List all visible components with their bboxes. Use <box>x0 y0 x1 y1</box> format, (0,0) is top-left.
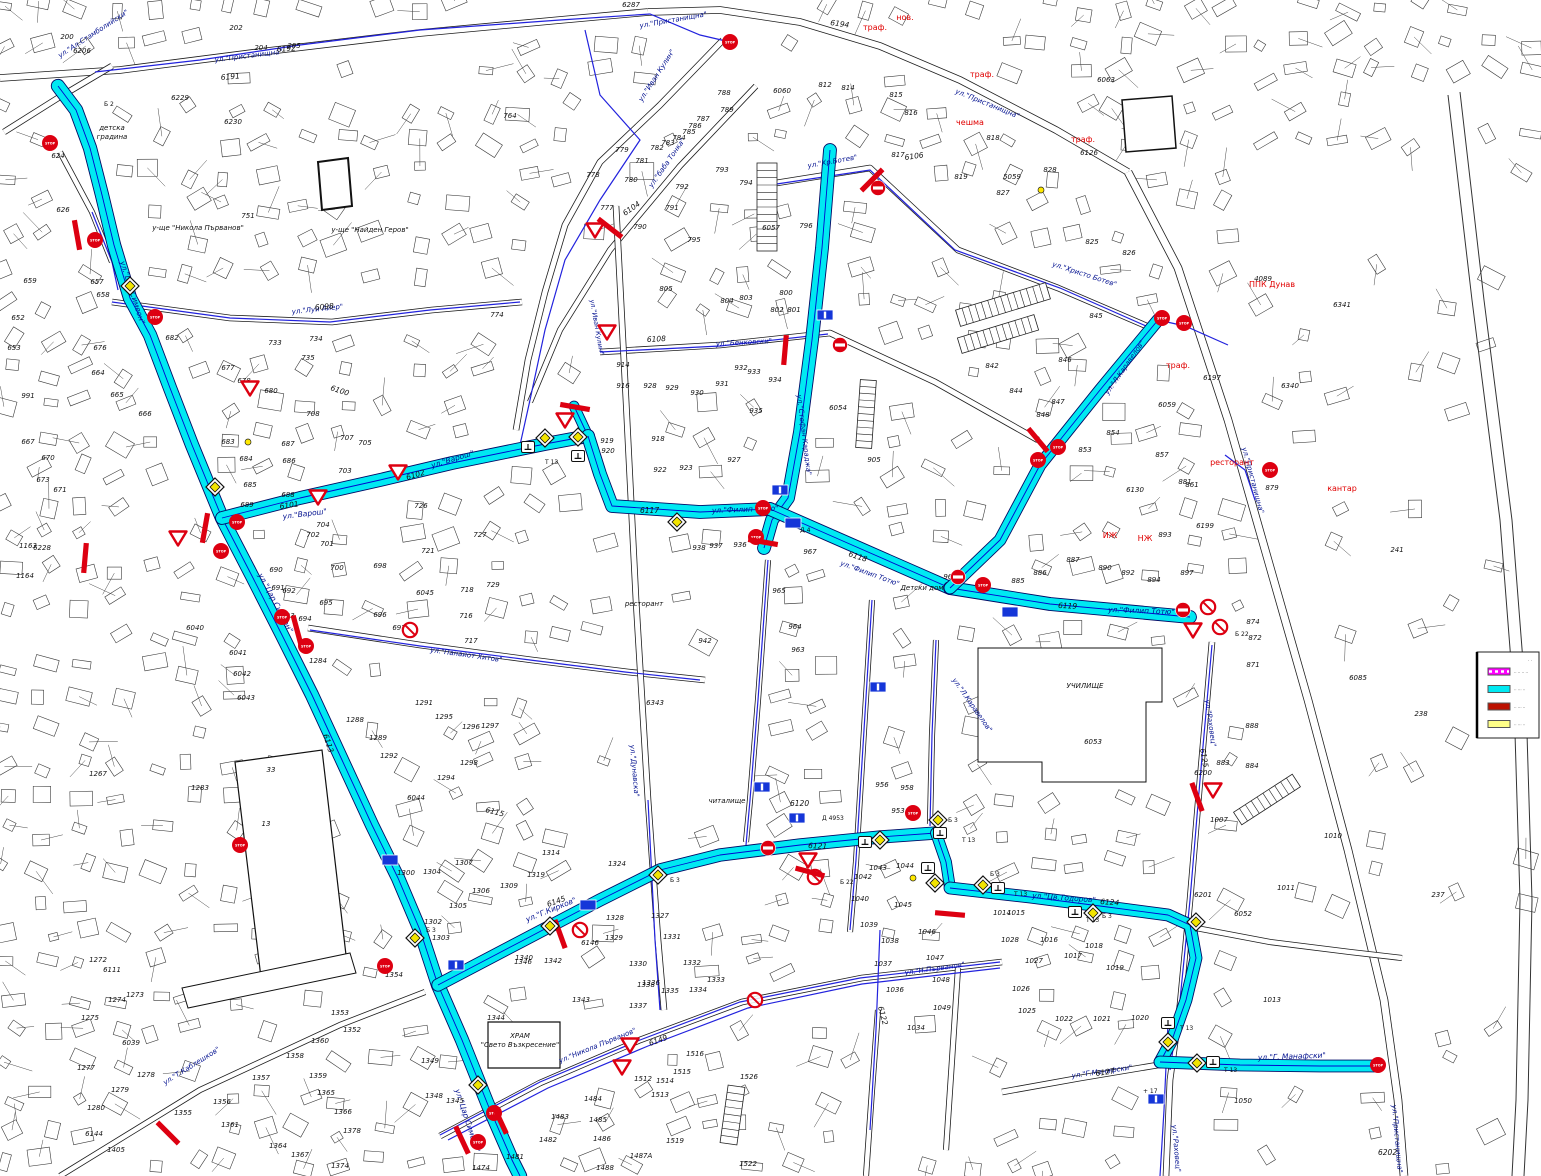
info-glyph <box>824 312 826 319</box>
hydrant-dot-icon <box>1038 187 1044 193</box>
parcel-outline <box>744 437 757 450</box>
parcel-outline <box>0 665 16 676</box>
parcel-outline <box>1369 1127 1381 1139</box>
parcel-outline <box>364 1151 384 1163</box>
parcel-outline <box>964 501 986 520</box>
parcel-number: 6039 <box>122 1039 140 1047</box>
parcel-outline <box>250 355 268 373</box>
parcel-outline <box>1025 35 1046 50</box>
parcel-number: 1334 <box>689 986 707 994</box>
parcel-outline <box>63 900 87 913</box>
parcel-outline <box>437 880 463 903</box>
parcel-outline <box>581 621 603 635</box>
parcel-outline <box>1520 62 1541 78</box>
parcel-number: 1018 <box>1085 942 1103 950</box>
parcel-number: 1314 <box>542 849 560 857</box>
parcel-number: 1291 <box>415 699 433 707</box>
parcel-outline <box>1112 231 1124 243</box>
parcel-number: 1345 <box>446 1097 464 1105</box>
parcel-outline <box>879 321 903 344</box>
parcel-outline <box>812 1027 826 1038</box>
parcel-outline <box>332 335 354 352</box>
parcel-boundary-line <box>1209 900 1231 920</box>
parcel-number: 1344 <box>487 1014 505 1022</box>
parcel-number: 690 <box>269 566 283 574</box>
parcel-outline <box>114 1060 133 1075</box>
parcel-outline <box>1411 0 1429 9</box>
parcel-number: 659 <box>23 277 37 285</box>
parcel-outline <box>1478 123 1496 144</box>
parcel-number: 1328 <box>606 914 624 922</box>
parcel-number: 241 <box>1390 546 1403 554</box>
direction-table-sign-icon <box>1162 1018 1175 1029</box>
parcel-outline <box>891 294 906 306</box>
road-closure-bar-icon <box>935 910 965 918</box>
parcel-number: 686 <box>282 457 296 465</box>
parcel-number: 718 <box>460 586 474 594</box>
map-legend: · ··· ·· ·· ···· ··· ···· ··· ···· ··· ·… <box>1477 652 1539 738</box>
parcel-number: 676 <box>93 344 107 352</box>
sign-code-label: Т 13 <box>961 837 975 844</box>
parcel-number: 701 <box>320 540 333 548</box>
parcel-outline <box>484 699 497 706</box>
stop-sign-icon: STOP <box>229 514 245 530</box>
parcel-outline <box>1327 135 1348 146</box>
parcel-outline <box>1363 58 1378 76</box>
parcel-number: 1359 <box>309 1072 327 1080</box>
parcel-number: 791 <box>665 204 678 212</box>
parcel-outline <box>1 1120 22 1141</box>
parcel-outline <box>337 61 353 78</box>
parcel-outline <box>44 1120 60 1139</box>
parcel-number: 1304 <box>423 868 441 876</box>
parcel-number: 1037 <box>874 960 892 968</box>
parcel-outline <box>666 422 685 437</box>
parcel-outline <box>1 789 15 802</box>
parcel-outline <box>144 437 157 447</box>
parcel-number: 726 <box>414 502 428 510</box>
parcel-outline <box>446 195 470 211</box>
parcel-number: 33 <box>267 766 276 774</box>
parcel-number: 884 <box>1245 762 1258 770</box>
parcel-number: 751 <box>241 212 254 220</box>
sign-code-label: Т 13 <box>1223 1067 1237 1074</box>
parcel-number: 657 <box>90 278 104 286</box>
parcel-number: 764 <box>503 112 516 120</box>
parcel-number: 6199 <box>1196 522 1214 530</box>
parcel-outline <box>816 438 834 447</box>
parcel-boundary-line <box>4 1062 32 1071</box>
parcel-outline <box>1107 624 1128 640</box>
parcel-outline <box>1222 528 1237 540</box>
parcel-number: 1298 <box>460 759 478 767</box>
parcel-number: 879 <box>1265 484 1279 492</box>
road-surface <box>946 968 958 1150</box>
parcel-outline <box>1333 59 1356 78</box>
parcel-outline <box>220 139 240 157</box>
parcel-outline <box>331 1131 344 1143</box>
parcel-outline <box>288 199 308 212</box>
parcel-outline <box>1218 498 1246 521</box>
parcel-outline <box>588 58 613 75</box>
parcel-outline <box>222 0 235 13</box>
parcel-outline <box>920 134 941 148</box>
parcel-outline <box>1179 423 1202 437</box>
parcel-number: 916 <box>616 382 630 390</box>
parcel-outline <box>774 129 786 138</box>
parcel-outline <box>253 530 264 539</box>
parcel-number: 664 <box>91 369 104 377</box>
parcel-outline <box>1141 965 1160 980</box>
parcel-number: 892 <box>1121 569 1135 577</box>
parcel-number: 716 <box>459 612 473 620</box>
parcel-number: 1045 <box>894 901 912 909</box>
parcel-number: 1335 <box>661 987 679 995</box>
parcel-outline <box>914 297 936 313</box>
parcel-number: 1349 <box>421 1057 439 1065</box>
yield-triangle <box>1205 784 1222 798</box>
parcel-outline <box>438 493 461 515</box>
parcel-number: 1309 <box>500 882 518 890</box>
parcel-number: 1044 <box>896 862 914 870</box>
legend-item-label: ·· ··· ·· <box>1514 688 1525 693</box>
parcel-outline <box>361 269 380 283</box>
stop-sign-icon: STOP <box>274 609 290 625</box>
parcel-number: 1288 <box>346 716 364 724</box>
parcel-number: 1016 <box>1040 936 1058 944</box>
parcel-outline <box>1297 0 1319 9</box>
no-entry-sign-icon <box>951 570 966 585</box>
parcel-number: 815 <box>889 91 903 99</box>
parcel-number: 688 <box>281 491 295 499</box>
parcel-outline <box>560 1158 577 1172</box>
parcel-outline <box>517 798 534 815</box>
parcel-number: 874 <box>1246 618 1259 626</box>
parcel-number: 677 <box>221 364 235 372</box>
parcel-outline <box>332 659 351 676</box>
parcel-number: 795 <box>687 236 701 244</box>
parcel-outline <box>150 1160 162 1172</box>
parcel-number: 666 <box>138 410 152 418</box>
parcel-outline <box>69 997 90 1010</box>
parcel-outline <box>223 787 239 803</box>
parcel-number: 13 <box>262 820 271 828</box>
stop-sign-icon: STOP <box>755 500 771 516</box>
facility-label: ресторант <box>624 600 664 608</box>
parcel-number: 6111 <box>103 966 121 974</box>
yield-sign-icon <box>557 414 574 428</box>
no-entry-bar <box>1178 608 1188 611</box>
parcel-outline <box>224 633 240 648</box>
parcel-number: 6054 <box>829 404 847 412</box>
parcel-boundary-line <box>1272 99 1296 112</box>
parcel-outline <box>137 159 157 176</box>
direction-table-sign-icon <box>522 442 535 453</box>
parcel-strip <box>720 1085 745 1145</box>
parcel-number: 6201 <box>1194 891 1212 899</box>
parcel-outline <box>39 432 58 445</box>
parcel-strip <box>856 380 877 449</box>
no-entry-bar <box>835 343 845 346</box>
street-code-label: 6119 <box>1058 601 1078 611</box>
parcel-number: 1015 <box>1007 909 1025 917</box>
parcel-outline <box>1324 387 1349 405</box>
parcel-outline <box>0 722 9 732</box>
parcel-number: 956 <box>875 781 889 789</box>
parcel-number: 1342 <box>544 957 562 965</box>
parcel-boundary-line <box>1042 554 1059 567</box>
parcel-outline <box>77 918 99 938</box>
parcel-number: 1329 <box>605 934 623 942</box>
parcel-number: 1042 <box>854 873 872 881</box>
stop-text: STOP <box>725 40 736 44</box>
parcel-outline <box>880 466 904 488</box>
prohibition-sign-icon <box>1213 620 1227 634</box>
building-outline <box>318 158 352 210</box>
street-highlight <box>588 436 770 512</box>
parcel-outline <box>581 946 605 968</box>
parcel-number: 991 <box>21 392 34 400</box>
parcel-number: 801 <box>787 306 800 314</box>
parcel-outline <box>1031 858 1056 871</box>
parcel-outline <box>432 527 460 552</box>
parcel-number: 881 <box>1178 478 1191 486</box>
parcel-outline <box>1039 989 1053 1001</box>
parcel-outline <box>520 139 538 153</box>
parcel-outline <box>1114 925 1131 943</box>
direction-table-sign-icon <box>922 863 935 874</box>
parcel-number: 953 <box>891 807 904 815</box>
red-annotation-label: траф. <box>1071 135 1095 144</box>
parcel-outline <box>112 688 135 709</box>
parcel-outline <box>1295 883 1316 903</box>
parcel-outline <box>304 990 323 1007</box>
stop-text: STOP <box>758 506 769 510</box>
parcel-number: 1336 <box>642 979 660 987</box>
parcel-outline <box>148 267 166 277</box>
parcel-outline <box>293 1160 313 1176</box>
parcel-number: 1038 <box>881 937 899 945</box>
parcel-outline <box>30 33 55 53</box>
parcel-outline <box>33 786 50 802</box>
parcel-outline <box>1151 636 1165 646</box>
parcel-outline <box>1112 1087 1139 1110</box>
parcel-outline <box>144 557 160 572</box>
parcel-outline <box>1519 128 1541 139</box>
parcel-number: 1272 <box>89 956 107 964</box>
parcel-outline <box>394 757 419 781</box>
parcel-number: 887 <box>1066 556 1080 564</box>
parcel-number: 6040 <box>186 624 204 632</box>
street-code-label: 6202 <box>1378 1148 1397 1157</box>
parcel-number: 802 <box>770 306 784 314</box>
no-entry-bar <box>873 186 883 189</box>
parcel-outline <box>288 464 305 481</box>
direction-table-sign-icon <box>934 828 947 839</box>
parcel-outline <box>1038 793 1060 814</box>
parcel-outline <box>1027 191 1049 210</box>
parcel-outline <box>442 365 457 379</box>
parcel-number: 778 <box>586 171 600 179</box>
no-entry-sign-icon <box>833 338 848 353</box>
stop-text: STOP <box>235 843 246 847</box>
parcel-number: 695 <box>319 599 333 607</box>
building-outline <box>1122 96 1176 152</box>
parcel-number: 918 <box>651 435 665 443</box>
parcel-number: 704 <box>316 521 329 529</box>
parcel-number: 1514 <box>656 1077 674 1085</box>
sign-code-label: Д 4953 <box>822 815 844 822</box>
parcel-number: 1512 <box>634 1075 652 1083</box>
parcel-number: 6045 <box>416 589 434 597</box>
parcel-outline <box>142 1025 159 1043</box>
parcel-outline <box>332 535 347 545</box>
yield-triangle <box>557 414 574 428</box>
parcel-outline <box>35 764 50 778</box>
parcel-outline <box>45 1023 62 1040</box>
parcel-outline <box>1188 535 1202 546</box>
facility-label: у-ще "Найден Геров" <box>330 226 408 234</box>
parcel-outline <box>846 125 869 148</box>
parcel-outline <box>370 0 394 17</box>
facility-label: "Свето Възкресение" <box>481 1041 559 1049</box>
red-annotation-label: траф. <box>1166 361 1190 370</box>
parcel-number: 202 <box>229 24 243 32</box>
parcel-outline <box>1184 0 1207 19</box>
parcel-number: 1279 <box>111 1086 129 1094</box>
parcel-number: 1366 <box>334 1108 352 1116</box>
parcel-strip <box>1234 774 1301 825</box>
stop-sign-icon: STOP <box>42 135 58 151</box>
street-code-label: 6106 <box>904 150 924 162</box>
building-outline <box>235 750 348 986</box>
parcel-boundary-line <box>1330 12 1348 20</box>
parcel-number: 1355 <box>174 1109 192 1117</box>
sign-code-label: Б 3 <box>426 927 436 934</box>
sign-code-label: Т 13 <box>1013 891 1027 898</box>
parcel-boundary-line <box>5 961 25 975</box>
parcel-number: 1353 <box>331 1009 349 1017</box>
parcel-number: 1020 <box>1131 1014 1149 1022</box>
info-glyph <box>1155 1096 1157 1103</box>
parcel-outline <box>1228 558 1246 574</box>
parcel-outline <box>516 820 533 840</box>
parcel-number: 1333 <box>707 976 725 984</box>
legend-title: · · <box>1528 658 1532 663</box>
parcel-outline <box>785 564 799 577</box>
stop-text: STOP <box>1053 445 1064 449</box>
parcel-outline <box>0 493 11 513</box>
parcel-outline <box>253 422 272 438</box>
parcel-outline <box>921 459 945 477</box>
parcel-outline <box>1064 620 1082 634</box>
parcel-number: 886 <box>1033 569 1047 577</box>
parcel-outline <box>258 1021 277 1042</box>
parcel-number: 923 <box>679 464 692 472</box>
parcel-outline <box>928 0 947 8</box>
building-outline <box>978 648 1162 782</box>
legend-item: ·· ··· ·· <box>1488 686 1525 693</box>
parcel-number: 847 <box>1051 398 1065 406</box>
yield-sign-icon <box>242 382 259 396</box>
parcel-outline <box>513 852 536 872</box>
parcel-number: 817 <box>891 151 905 159</box>
parcel-outline <box>1374 3 1386 12</box>
info-sign-icon <box>870 682 886 692</box>
parcel-outline <box>710 268 725 284</box>
parcel-number: 936 <box>733 541 747 549</box>
parcel-number: 1022 <box>1055 1015 1073 1023</box>
sign-code-label: Б 22 <box>1235 631 1249 638</box>
parcel-outline <box>884 75 905 87</box>
parcel-outline <box>1103 403 1125 420</box>
yield-sign-icon <box>614 1061 631 1075</box>
parcel-outline <box>558 494 582 512</box>
parcel-outline <box>1217 229 1239 244</box>
parcel-outline <box>0 1056 11 1069</box>
parcel-outline <box>511 466 532 484</box>
parcel-outline <box>781 35 798 52</box>
parcel-outline <box>1366 831 1385 849</box>
parcel-number: 200 <box>60 33 74 41</box>
parcel-outline <box>885 134 905 146</box>
parcel-number: 6197 <box>1203 374 1221 382</box>
parcel-outline <box>1369 861 1382 876</box>
parcel-boundary-line <box>1014 1151 1036 1166</box>
parcel-number: 1486 <box>593 1135 611 1143</box>
parcel-outline <box>34 654 60 672</box>
parcel-number: 703 <box>338 467 351 475</box>
parcel-number: 885 <box>1011 577 1025 585</box>
parcel-number: 893 <box>1158 531 1171 539</box>
parcel-number: 665 <box>110 391 124 399</box>
parcel-number: 1013 <box>1263 996 1281 1004</box>
parcel-outline <box>229 104 245 117</box>
parcel-number: 819 <box>954 173 968 181</box>
parcel-outline <box>994 794 1014 807</box>
parcel-outline <box>512 698 527 718</box>
parcel-number: 890 <box>1098 564 1112 572</box>
parcel-number: 6053 <box>1084 738 1102 746</box>
parcel-number: 1483 <box>551 1113 569 1121</box>
parcel-number: 781 <box>635 157 648 165</box>
parcel-outline <box>440 558 458 574</box>
parcel-outline <box>0 98 10 112</box>
parcel-outline <box>453 423 468 437</box>
parcel-outline <box>1062 1118 1087 1138</box>
parcel-number: 721 <box>421 547 434 555</box>
parcel-number: 825 <box>1085 238 1099 246</box>
parcel-boundary-line <box>104 363 123 378</box>
parcel-number: 708 <box>306 410 320 418</box>
parcel-number: 927 <box>727 456 741 464</box>
sign-code-label: + 17 <box>1143 1088 1158 1095</box>
parcel-number: 204 <box>254 44 267 52</box>
parcel-number: 871 <box>1246 661 1259 669</box>
parcel-number: 963 <box>791 646 804 654</box>
parcel-outline <box>964 132 988 156</box>
parcel-outline <box>29 1086 51 1097</box>
info-sign-icon <box>1002 607 1018 617</box>
parcel-outline <box>180 754 191 769</box>
parcel-outline <box>146 463 168 486</box>
parcel-number: 1283 <box>191 784 209 792</box>
parcel-number: 735 <box>301 354 315 362</box>
parcel-outline <box>887 503 908 517</box>
parcel-outline <box>996 831 1007 842</box>
parcel-outline <box>154 992 170 1001</box>
parcel-number: 1307 <box>455 859 473 867</box>
